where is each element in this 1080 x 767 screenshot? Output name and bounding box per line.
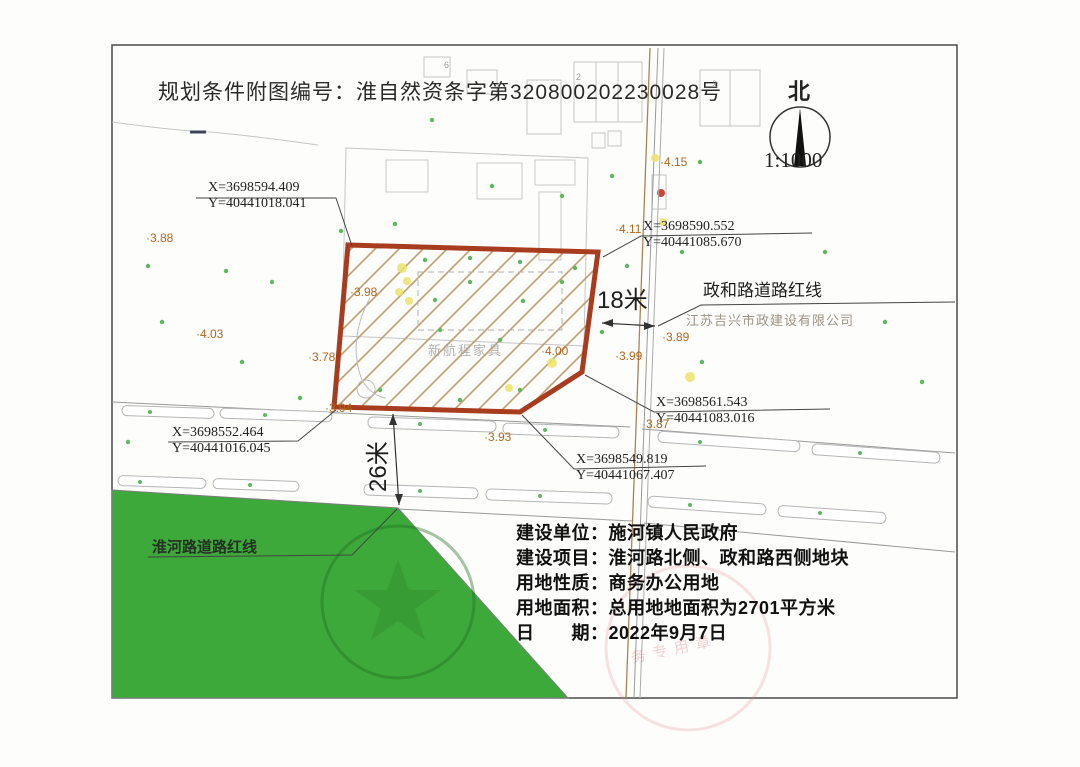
building-number: 2 bbox=[712, 79, 717, 89]
coordinate-x: X=3698594.409 bbox=[208, 180, 307, 196]
elevation-point: ·3.87 bbox=[642, 417, 669, 431]
elevation-point: ·3.98 bbox=[350, 285, 377, 299]
map-drawing bbox=[0, 0, 1080, 767]
building-number: 6 bbox=[444, 60, 449, 70]
plot-interior-name: 新航程家具 bbox=[428, 340, 503, 359]
info-line-project: 建设项目：淮河路北侧、政和路西侧地块 bbox=[516, 546, 849, 571]
coordinate-callout: X=3698594.409 Y=40441018.041 bbox=[208, 180, 307, 212]
elevation-point: ·4.00 bbox=[541, 344, 568, 358]
drawing-title: 规划条件附图编号：淮自然资条字第320800202230028号 bbox=[158, 76, 722, 106]
elevation-point: ·3.93 bbox=[484, 430, 511, 444]
elevation-point: ·4.15 bbox=[660, 155, 687, 169]
coordinate-callout: X=3698552.464 Y=40441016.045 bbox=[172, 425, 271, 457]
building-number: 2 bbox=[576, 72, 581, 82]
coordinate-x: X=3698590.552 bbox=[643, 219, 742, 235]
coordinate-y: Y=40441085.670 bbox=[643, 235, 742, 251]
huaihe-road-width: 26米 bbox=[358, 441, 393, 492]
coordinate-callout: X=3698590.552 Y=40441085.670 bbox=[643, 219, 742, 251]
info-line-area: 用地面积：总用地地面积为2701平方米 bbox=[516, 596, 849, 621]
zhenghe-road-redline-label: 政和路道路红线 bbox=[703, 276, 822, 301]
elevation-point: ·4.03 bbox=[196, 327, 223, 341]
north-label: 北 bbox=[788, 74, 810, 106]
plot-boundary bbox=[334, 245, 598, 412]
info-line-use: 用地性质：商务办公用地 bbox=[516, 571, 849, 596]
dimension-18m-arrow bbox=[602, 319, 655, 330]
zhenghe-road-width: 18米 bbox=[597, 280, 648, 315]
map-scale: 1:1000 bbox=[764, 148, 822, 173]
coordinate-x: X=3698552.464 bbox=[172, 425, 271, 441]
coordinate-y: Y=40441067.407 bbox=[576, 468, 675, 484]
coordinate-x: X=3698561.543 bbox=[656, 395, 755, 411]
info-line-unit: 建设单位：施河镇人民政府 bbox=[516, 521, 849, 546]
construction-company-watermark: 江苏吉兴市政建设有限公司 bbox=[686, 310, 854, 329]
coordinate-y: Y=40441016.045 bbox=[172, 441, 271, 457]
project-info-block: 建设单位：施河镇人民政府 建设项目：淮河路北侧、政和路西侧地块 用地性质：商务办… bbox=[516, 521, 849, 646]
elevation-point: ·3.99 bbox=[615, 349, 642, 363]
coordinate-y: Y=40441018.041 bbox=[208, 196, 307, 212]
elevation-point: ·3.89 bbox=[662, 330, 689, 344]
coordinate-y: Y=40441083.016 bbox=[656, 411, 755, 427]
coordinate-callout: X=3698561.543 Y=40441083.016 bbox=[656, 395, 755, 427]
green-area bbox=[112, 490, 568, 698]
elevation-point: ·4.11 bbox=[615, 222, 641, 236]
huaihe-road-redline-label: 淮河路道路红线 bbox=[152, 536, 257, 557]
info-line-date: 日 期：2022年9月7日 bbox=[516, 621, 849, 646]
elevation-point: ·3.78 bbox=[308, 350, 335, 364]
coordinate-callout: X=3698549.819 Y=40441067.407 bbox=[576, 452, 675, 484]
planning-map-sheet: 规划条件附图编号：淮自然资条字第320800202230028号 北 1:100… bbox=[0, 0, 1080, 767]
coordinate-x: X=3698549.819 bbox=[576, 452, 675, 468]
elevation-point: ·3.94 bbox=[325, 401, 352, 415]
elevation-point: ·3.88 bbox=[146, 231, 173, 245]
